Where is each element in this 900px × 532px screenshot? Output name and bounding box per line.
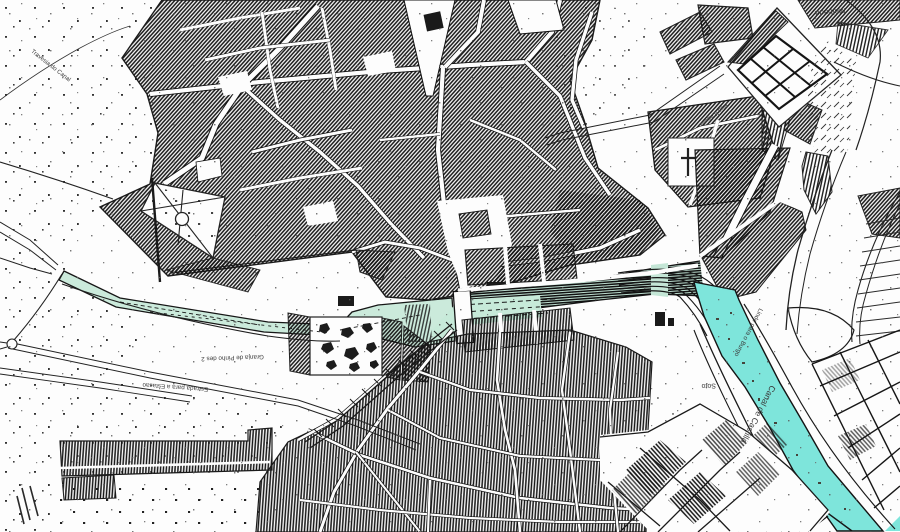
svg-text:Soto: Soto — [701, 382, 716, 390]
